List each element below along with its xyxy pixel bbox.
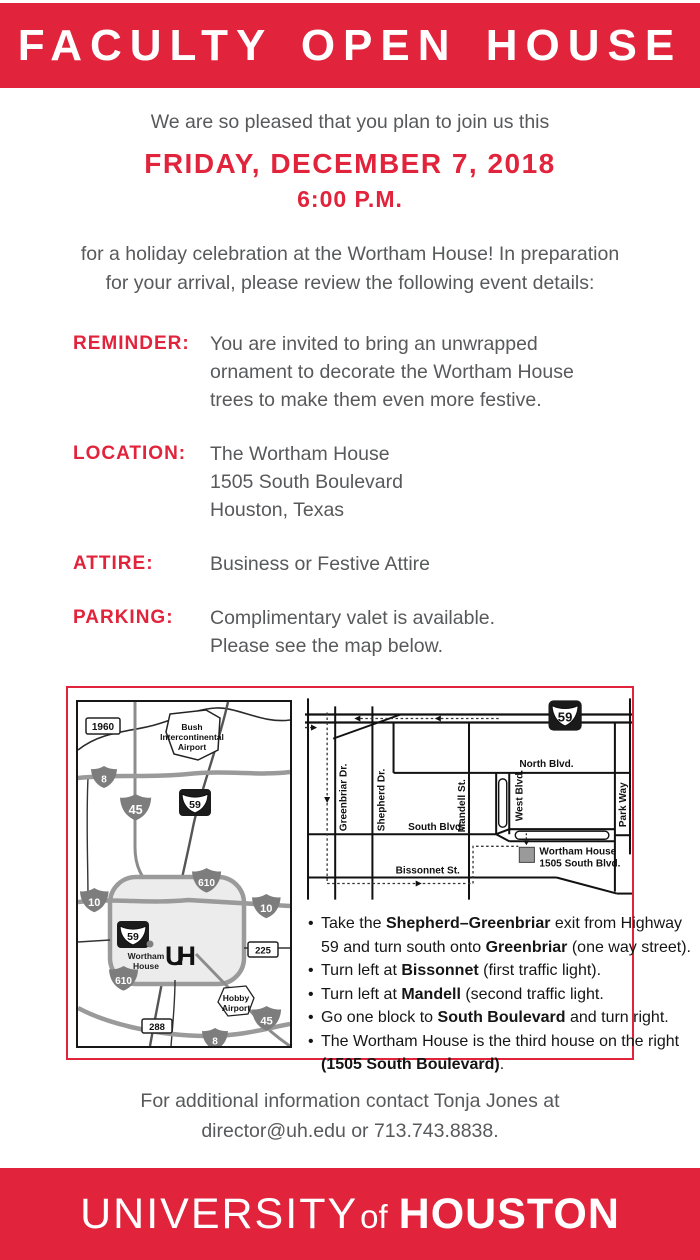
svg-text:1960: 1960 <box>92 722 115 733</box>
svg-text:610: 610 <box>198 878 215 889</box>
svg-text:59: 59 <box>127 931 139 943</box>
detail-value: Business or Festive Attire <box>210 550 430 578</box>
flyer-page: FACULTY OPEN HOUSE We are so pleased tha… <box>0 0 700 1260</box>
page-title: FACULTY OPEN HOUSE <box>18 21 682 71</box>
north-blvd-label: North Blvd. <box>519 759 573 770</box>
detail-label: PARKING: <box>73 604 210 660</box>
wordmark-of: of <box>360 1198 388 1236</box>
hobby-airport-label: Hobby <box>223 993 250 1003</box>
interstate-45-shield: 45 <box>120 794 151 820</box>
svg-text:8: 8 <box>101 775 107 786</box>
text-line: trees to make them even more festive. <box>210 386 574 414</box>
contact-line: director@uh.edu or 713.743.8838. <box>0 1116 700 1146</box>
direction-line: 59 and turn south onto Greenbriar (one w… <box>308 936 638 960</box>
text-line: for your arrival, please review the foll… <box>0 269 700 298</box>
driving-directions: Take the Shepherd–Greenbriar exit from H… <box>308 912 638 1077</box>
route-1960-shield: 1960 <box>86 718 120 734</box>
event-time: 6:00 P.M. <box>0 185 700 213</box>
route-arrow <box>523 840 529 845</box>
header-banner: FACULTY OPEN HOUSE <box>0 3 700 88</box>
route-dotted <box>327 712 518 883</box>
intro-section: We are so pleased that you plan to join … <box>0 110 700 213</box>
direction-line: Turn left at Mandell (second traffic lig… <box>308 983 638 1007</box>
route-225-shield: 225 <box>248 942 278 957</box>
text-line: Please see the map below. <box>210 632 495 660</box>
detail-value: Complimentary valet is available. Please… <box>210 604 495 660</box>
route-arrow <box>416 880 422 886</box>
interstate-10-shield: 10 <box>252 894 281 918</box>
street-detail-map: Wortham House 1505 South Blvd. 59 Greenb… <box>305 698 632 900</box>
detail-attire: ATTIRE: Business or Festive Attire <box>73 550 663 578</box>
wortham-house-label: 1505 South Blvd. <box>539 858 620 869</box>
detail-label: LOCATION: <box>73 440 210 524</box>
bush-airport-label: Intercontinental <box>160 732 224 742</box>
road <box>78 940 110 942</box>
shepherd-label: Shepherd Dr. <box>376 768 387 831</box>
street <box>496 829 509 834</box>
west-blvd-esplanade <box>499 779 507 827</box>
beltway-8-shield: 8 <box>91 766 117 788</box>
text-line: The Wortham House <box>210 440 403 468</box>
west-blvd-label: West Blvd. <box>514 770 525 821</box>
contact-line: For additional information contact Tonja… <box>0 1086 700 1116</box>
svg-text:10: 10 <box>260 903 272 915</box>
greeting-line: We are so pleased that you plan to join … <box>0 110 700 134</box>
detail-label: REMINDER: <box>73 330 210 414</box>
text-line: for a holiday celebration at the Wortham… <box>0 240 700 269</box>
us-59-shield: 59 <box>548 700 581 730</box>
houston-area-map: Bush Intercontinental Airport 1960 8 45 <box>76 700 292 1048</box>
wortham-house-marker <box>519 847 534 862</box>
route-arrow <box>354 715 360 721</box>
svg-text:225: 225 <box>255 946 272 957</box>
direction-line: Take the Shepherd–Greenbriar exit from H… <box>308 912 638 936</box>
svg-text:45: 45 <box>129 803 143 817</box>
south-blvd-label: South Blvd. <box>408 822 464 833</box>
beltway-8-shield: 8 <box>202 1028 228 1046</box>
svg-text:10: 10 <box>88 897 100 909</box>
detail-value: The Wortham House 1505 South Boulevard H… <box>210 440 403 524</box>
text-line: You are invited to bring an unwrapped <box>210 330 574 358</box>
map-box: Bush Intercontinental Airport 1960 8 45 <box>66 686 634 1060</box>
wordmark-university: UNIVERSITY <box>80 1190 358 1239</box>
detail-reminder: REMINDER: You are invited to bring an un… <box>73 330 663 414</box>
houston-area-map-svg: Bush Intercontinental Airport 1960 8 45 <box>78 702 290 1046</box>
lead-paragraph: for a holiday celebration at the Wortham… <box>0 240 700 298</box>
text-line: Business or Festive Attire <box>210 550 430 578</box>
us-59-shield: 59 <box>117 921 149 948</box>
svg-text:288: 288 <box>149 1022 165 1033</box>
direction-line: Go one block to South Boulevard and turn… <box>308 1006 638 1030</box>
svg-text:59: 59 <box>558 710 573 725</box>
loop-610-shield: 610 <box>109 966 138 991</box>
event-details: REMINDER: You are invited to bring an un… <box>73 330 663 686</box>
detail-parking: PARKING: Complimentary valet is availabl… <box>73 604 663 660</box>
detail-location: LOCATION: The Wortham House 1505 South B… <box>73 440 663 524</box>
wortham-house-dot <box>147 941 154 948</box>
street <box>496 834 509 841</box>
route-arrow <box>324 797 330 803</box>
route-288-shield: 288 <box>142 1019 172 1033</box>
text-line: Complimentary valet is available. <box>210 604 495 632</box>
bush-airport-label: Airport <box>178 742 207 752</box>
road <box>87 778 88 900</box>
wortham-house-label: Wortham <box>128 951 165 961</box>
greenbriar-label: Greenbriar Dr. <box>338 763 349 831</box>
direction-line: (1505 South Boulevard). <box>308 1053 638 1077</box>
detail-value: You are invited to bring an unwrapped or… <box>210 330 574 414</box>
svg-text:59: 59 <box>189 799 201 811</box>
svg-text:610: 610 <box>115 976 132 987</box>
bissonnet-label: Bissonnet St. <box>396 865 460 876</box>
park-way-label: Park Way <box>618 782 629 827</box>
event-date: FRIDAY, DECEMBER 7, 2018 <box>0 147 700 181</box>
bush-airport-label: Bush <box>181 722 202 732</box>
south-blvd-esplanade <box>515 831 609 839</box>
hobby-airport-label: Airport <box>222 1003 251 1013</box>
direction-line: The Wortham House is the third house on … <box>308 1030 638 1054</box>
direction-line: Turn left at Bissonnet (first traffic li… <box>308 959 638 983</box>
svg-text:45: 45 <box>260 1015 272 1027</box>
us-59-shield: 59 <box>179 789 211 816</box>
wordmark-houston: HOUSTON <box>399 1190 620 1239</box>
detail-label: ATTIRE: <box>73 550 210 578</box>
street-detail-map-svg: Wortham House 1505 South Blvd. 59 Greenb… <box>305 698 632 900</box>
footer-banner: UNIVERSITY of HOUSTON <box>0 1168 700 1260</box>
wortham-house-label: Wortham House <box>539 846 616 857</box>
text-line: Houston, Texas <box>210 496 403 524</box>
text-line: 1505 South Boulevard <box>210 468 403 496</box>
interstate-45-road <box>135 702 152 888</box>
interstate-10-shield: 10 <box>80 888 109 912</box>
route-arrow <box>311 725 317 731</box>
university-of-houston-wordmark: UNIVERSITY of HOUSTON <box>80 1190 620 1239</box>
street <box>557 877 617 893</box>
svg-text:8: 8 <box>212 1037 218 1047</box>
text-line: ornament to decorate the Wortham House <box>210 358 574 386</box>
route-arrow <box>435 715 441 721</box>
contact-section: For additional information contact Tonja… <box>0 1086 700 1146</box>
